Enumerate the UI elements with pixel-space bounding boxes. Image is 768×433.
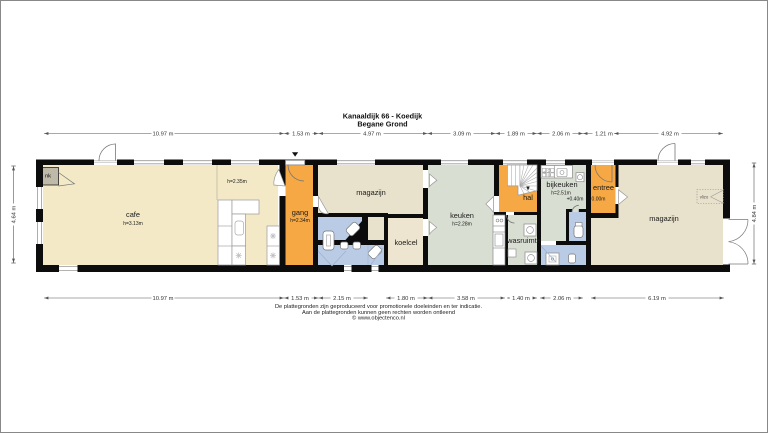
svg-text:4.92 m: 4.92 m — [661, 132, 679, 138]
svg-text:magazijn: magazijn — [356, 188, 386, 197]
svg-text:nk: nk — [45, 174, 51, 180]
svg-text:cafe: cafe — [126, 210, 140, 219]
svg-text:0.00m: 0.00m — [592, 197, 606, 203]
svg-text:© www.objectenco.nl: © www.objectenco.nl — [352, 315, 405, 322]
svg-text:entree: entree — [593, 183, 614, 192]
svg-text:wasruimte: wasruimte — [506, 236, 541, 245]
svg-text:2.15 m: 2.15 m — [333, 296, 351, 302]
svg-text:1.53 m: 1.53 m — [292, 132, 310, 138]
svg-text:3.09 m: 3.09 m — [453, 132, 471, 138]
svg-text:10.97 m: 10.97 m — [153, 132, 174, 138]
svg-text:h=3.13m: h=3.13m — [123, 221, 143, 227]
svg-text:gang: gang — [292, 208, 308, 217]
svg-text:1.40 m: 1.40 m — [512, 296, 530, 302]
svg-text:2.06 m: 2.06 m — [553, 296, 571, 302]
svg-text:2.06 m: 2.06 m — [552, 132, 570, 138]
svg-text:1.80 m: 1.80 m — [397, 296, 415, 302]
svg-text:1.21 m: 1.21 m — [595, 132, 613, 138]
svg-text:6.19 m: 6.19 m — [648, 296, 666, 302]
svg-text:h=2.28m: h=2.28m — [452, 222, 472, 228]
svg-text:+0.40m: +0.40m — [567, 197, 584, 203]
svg-text:keuken: keuken — [450, 211, 474, 220]
svg-text:vlizo: vlizo — [700, 195, 709, 200]
svg-text:Begane Grond: Begane Grond — [357, 119, 407, 128]
svg-text:bijkeuken: bijkeuken — [546, 180, 577, 189]
svg-text:4.64 m: 4.64 m — [12, 205, 18, 223]
svg-text:koelcel: koelcel — [394, 238, 417, 247]
svg-text:magazijn: magazijn — [649, 214, 679, 223]
svg-text:10.97 m: 10.97 m — [153, 296, 174, 302]
svg-text:h=2.35m: h=2.35m — [227, 179, 247, 185]
svg-text:1.89 m: 1.89 m — [507, 132, 525, 138]
svg-text:4.97 m: 4.97 m — [363, 132, 381, 138]
svg-text:h=2.34m: h=2.34m — [290, 218, 310, 224]
svg-text:hal: hal — [523, 193, 533, 202]
svg-text:4.84 m: 4.84 m — [752, 204, 758, 222]
svg-text:1.53 m: 1.53 m — [291, 296, 309, 302]
svg-text:3.58 m: 3.58 m — [457, 296, 475, 302]
